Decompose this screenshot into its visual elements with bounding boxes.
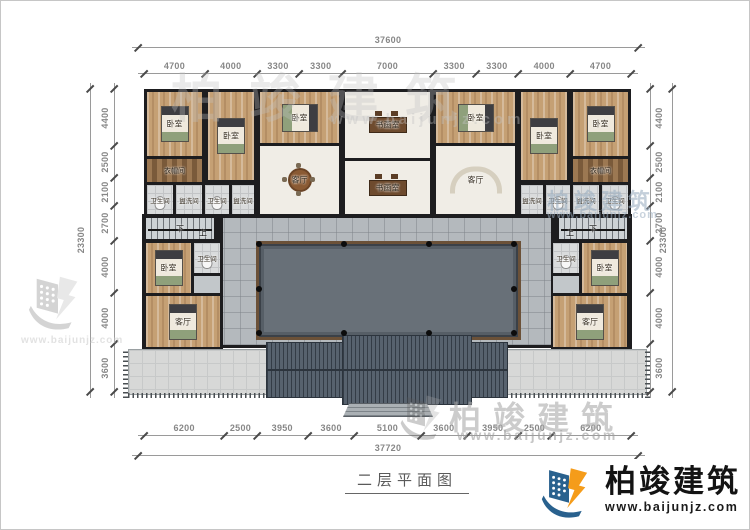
room-label: 盥洗间 bbox=[576, 195, 596, 205]
room-washroom-e2: 盥洗间 bbox=[521, 185, 543, 214]
dimension-value: 2500 bbox=[230, 423, 251, 433]
room-hall-west-wing bbox=[194, 276, 220, 293]
column-dot bbox=[256, 286, 262, 292]
dimension-value: 3300 bbox=[486, 61, 507, 71]
room-living-west-wing: 客厅 bbox=[146, 296, 220, 347]
room-label: 卫生间 bbox=[548, 195, 568, 205]
room-hall-east-wing bbox=[553, 276, 579, 293]
dimension-chain: 23300 bbox=[84, 89, 96, 391]
room-label: 卧室 bbox=[161, 263, 177, 274]
room-label: 卧室 bbox=[597, 263, 613, 274]
logo-icon bbox=[540, 461, 598, 519]
dimension-value: 37720 bbox=[375, 443, 402, 453]
dimension-value: 23300 bbox=[658, 227, 668, 254]
dimension-value: 2500 bbox=[524, 423, 545, 433]
dimension-value: 2500 bbox=[100, 152, 110, 173]
dimension-chain: 4400250021002700400040003600 bbox=[644, 89, 656, 391]
room-stair-west-up: 上 bbox=[197, 228, 209, 238]
dimension-value: 4700 bbox=[164, 61, 185, 71]
room-label: 客厅 bbox=[468, 175, 484, 186]
room-label: 卧室 bbox=[167, 119, 183, 130]
room-label: 衣帽间 bbox=[164, 166, 185, 176]
room-bedroom-nw-2: 卧室 bbox=[208, 92, 254, 180]
dimension-value: 4000 bbox=[654, 308, 664, 329]
room-label: 客厅 bbox=[175, 316, 191, 327]
column-dot bbox=[511, 241, 517, 247]
dimension-chain: 37720 bbox=[138, 443, 638, 459]
dimension-value: 4400 bbox=[100, 107, 110, 128]
dimension-value: 4000 bbox=[220, 61, 241, 71]
room-washroom-w1: 盥洗间 bbox=[176, 185, 202, 214]
entrance-steps bbox=[343, 403, 433, 417]
room-label: 盥洗间 bbox=[233, 195, 253, 205]
dimension-value: 4000 bbox=[654, 256, 664, 277]
room-bedroom-ne-3: 卧室 bbox=[436, 92, 515, 143]
room-washroom-e1: 盥洗间 bbox=[573, 185, 599, 214]
dimension-value: 4400 bbox=[654, 107, 664, 128]
dimension-value: 6200 bbox=[174, 423, 195, 433]
dimension-value: 4000 bbox=[100, 256, 110, 277]
logo-company-name: 柏竣建筑 bbox=[605, 466, 741, 499]
room-bedroom-nw-3: 卧室 bbox=[260, 92, 339, 143]
room-label: 卧室 bbox=[468, 112, 484, 123]
dimension-value: 3600 bbox=[321, 423, 342, 433]
column-dot bbox=[426, 330, 432, 336]
room-bedroom-ne-2: 卧室 bbox=[521, 92, 567, 180]
column-dot bbox=[511, 330, 517, 336]
room-label: 卧室 bbox=[292, 112, 308, 123]
room-label: 书画室 bbox=[376, 182, 400, 193]
room-stair-east-up: 上 bbox=[564, 228, 576, 238]
room-living-room-west: 客厅 bbox=[260, 146, 339, 214]
room-bathroom-east-wing: 卫生间 bbox=[553, 243, 579, 273]
dimension-value: 4700 bbox=[590, 61, 611, 71]
room-label: 下 bbox=[589, 223, 597, 234]
room-washroom-w2: 盥洗间 bbox=[232, 185, 254, 214]
dimension-value: 2100 bbox=[654, 181, 664, 202]
room-bedroom-nw-1: 卧室 bbox=[147, 92, 202, 156]
dimension-value: 3950 bbox=[272, 423, 293, 433]
column-dot bbox=[341, 241, 347, 247]
sheet-title: 二层平面图 bbox=[345, 469, 469, 494]
dimension-value: 3600 bbox=[433, 423, 454, 433]
dimension-value: 3950 bbox=[482, 423, 503, 433]
room-bathroom-e1: 卫生间 bbox=[602, 185, 628, 214]
room-bedroom-east-wing: 卧室 bbox=[582, 243, 627, 293]
gate-roof-center bbox=[342, 335, 472, 405]
room-label: 卧室 bbox=[593, 119, 609, 130]
room-label: 衣帽间 bbox=[590, 166, 611, 176]
dimension-value: 3300 bbox=[444, 61, 465, 71]
room-label: 下 bbox=[176, 223, 184, 234]
room-label: 卫生间 bbox=[207, 195, 227, 205]
room-bathroom-w2: 卫生间 bbox=[205, 185, 229, 214]
terrace-edge-hatch bbox=[128, 393, 280, 398]
dimension-value: 3300 bbox=[310, 61, 331, 71]
dimension-value: 4000 bbox=[100, 308, 110, 329]
terrace-southeast bbox=[493, 349, 647, 395]
terrace-edge-hatch bbox=[123, 349, 128, 398]
logo-text: 柏竣建筑 www.baijunjz.com bbox=[605, 466, 741, 515]
floorplan-sheet: 卧室卧室卧室书画室卧室卧室卧室衣帽间衣帽间客厅书画室客厅卫生间盥洗间卫生间盥洗间… bbox=[0, 0, 750, 530]
dimension-value: 23300 bbox=[76, 227, 86, 254]
room-label: 卫生间 bbox=[150, 195, 170, 205]
room-label: 上 bbox=[199, 228, 207, 239]
room-living-room-east: 客厅 bbox=[436, 146, 515, 214]
dimension-chain: 4400250021002700400040003600 bbox=[108, 89, 120, 391]
room-bedroom-west-wing: 卧室 bbox=[146, 243, 191, 293]
room-label: 卫生间 bbox=[556, 253, 576, 263]
terrace-southwest bbox=[128, 349, 282, 395]
dimension-value: 7000 bbox=[377, 61, 398, 71]
inner-courtyard bbox=[259, 244, 518, 337]
dimension-chain: 23300 bbox=[666, 89, 678, 391]
dimension-chain: 470040003300330070003300330040004700 bbox=[144, 61, 631, 77]
column-dot bbox=[341, 330, 347, 336]
dimension-chain: 37600 bbox=[138, 35, 638, 51]
room-label: 客厅 bbox=[292, 175, 308, 186]
dimension-value: 3600 bbox=[100, 357, 110, 378]
dimension-value: 2700 bbox=[100, 213, 110, 234]
room-art-studio-north: 书画室 bbox=[345, 92, 430, 158]
room-living-east-wing: 客厅 bbox=[553, 296, 627, 347]
dimension-value: 3300 bbox=[267, 61, 288, 71]
room-label: 卧室 bbox=[536, 131, 552, 142]
room-cloakroom-west: 衣帽间 bbox=[147, 159, 202, 182]
column-dot bbox=[511, 286, 517, 292]
room-label: 卫生间 bbox=[605, 195, 625, 205]
site-logo: 柏竣建筑 www.baijunjz.com bbox=[536, 459, 743, 521]
dimension-value: 2500 bbox=[654, 152, 664, 173]
dimension-value: 37600 bbox=[375, 35, 402, 45]
room-bathroom-w1: 卫生间 bbox=[147, 185, 173, 214]
room-bedroom-ne-1: 卧室 bbox=[573, 92, 628, 156]
column-dot bbox=[256, 241, 262, 247]
room-label: 卧室 bbox=[223, 131, 239, 142]
room-label: 上 bbox=[566, 228, 574, 239]
dimension-chain: 620025003950360051003600395025006200 bbox=[144, 423, 631, 439]
room-label: 书画室 bbox=[376, 120, 400, 131]
column-dot bbox=[256, 330, 262, 336]
room-art-studio-south: 书画室 bbox=[345, 161, 430, 214]
terrace-edge-hatch bbox=[493, 393, 645, 398]
watermark-logo-icon bbox=[27, 269, 89, 331]
dimension-value: 4000 bbox=[534, 61, 555, 71]
room-label: 盥洗间 bbox=[522, 195, 542, 205]
dimension-value: 3600 bbox=[654, 357, 664, 378]
room-cloakroom-east: 衣帽间 bbox=[573, 159, 628, 182]
dimension-value: 5100 bbox=[377, 423, 398, 433]
room-label: 客厅 bbox=[582, 316, 598, 327]
room-bathroom-west-wing: 卫生间 bbox=[194, 243, 220, 273]
room-bathroom-e2: 卫生间 bbox=[546, 185, 570, 214]
column-dot bbox=[426, 241, 432, 247]
dimension-value: 2100 bbox=[100, 181, 110, 202]
logo-website-url: www.baijunjz.com bbox=[605, 500, 741, 514]
room-label: 盥洗间 bbox=[179, 195, 199, 205]
dimension-value: 6200 bbox=[580, 423, 601, 433]
room-label: 卫生间 bbox=[197, 253, 217, 263]
